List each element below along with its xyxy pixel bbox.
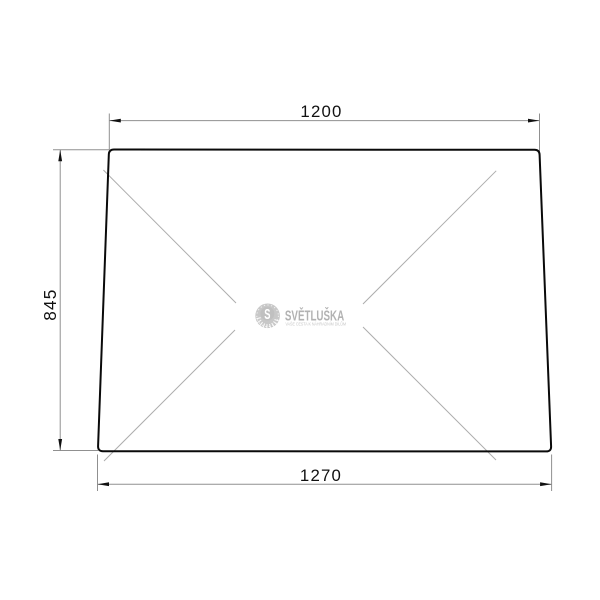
svg-text:VAŠE CESTA K NÁHRADNÍM DÍLŮM: VAŠE CESTA K NÁHRADNÍM DÍLŮM <box>286 321 346 326</box>
svg-text:S: S <box>264 306 270 323</box>
svg-text:1270: 1270 <box>300 466 342 485</box>
svg-text:845: 845 <box>40 288 60 320</box>
svg-text:1200: 1200 <box>300 102 342 121</box>
